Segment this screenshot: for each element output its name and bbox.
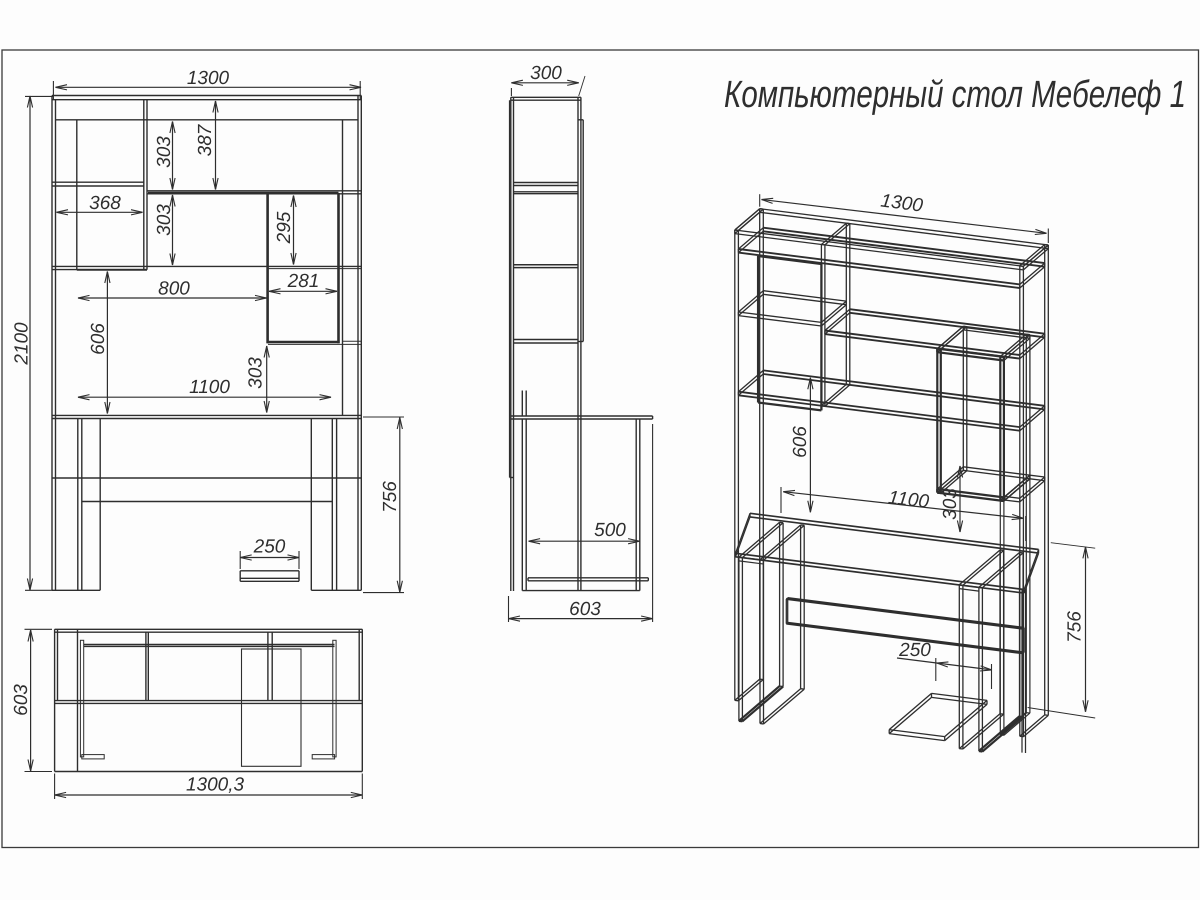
svg-text:250: 250	[253, 537, 286, 558]
svg-text:1300,3: 1300,3	[186, 775, 245, 796]
svg-text:756: 756	[1065, 611, 1086, 643]
svg-text:1300: 1300	[187, 68, 230, 89]
svg-text:603: 603	[569, 599, 601, 620]
svg-text:303: 303	[246, 357, 267, 389]
svg-text:387: 387	[195, 123, 216, 156]
svg-text:Компьютерный стол Мебелеф 1: Компьютерный стол Мебелеф 1	[724, 74, 1186, 116]
svg-text:303: 303	[154, 136, 175, 168]
svg-text:1100: 1100	[189, 377, 230, 398]
svg-text:368: 368	[89, 193, 121, 214]
svg-text:303: 303	[940, 488, 961, 520]
svg-text:300: 300	[530, 63, 562, 84]
svg-text:603: 603	[11, 684, 32, 716]
svg-text:303: 303	[154, 204, 175, 236]
svg-text:606: 606	[790, 426, 811, 458]
svg-text:756: 756	[380, 481, 401, 513]
svg-text:606: 606	[88, 323, 109, 355]
svg-text:250: 250	[898, 640, 931, 661]
svg-text:800: 800	[158, 279, 190, 300]
svg-text:2100: 2100	[11, 322, 32, 366]
svg-text:295: 295	[274, 211, 295, 244]
svg-text:500: 500	[594, 520, 626, 541]
svg-text:281: 281	[287, 271, 320, 292]
